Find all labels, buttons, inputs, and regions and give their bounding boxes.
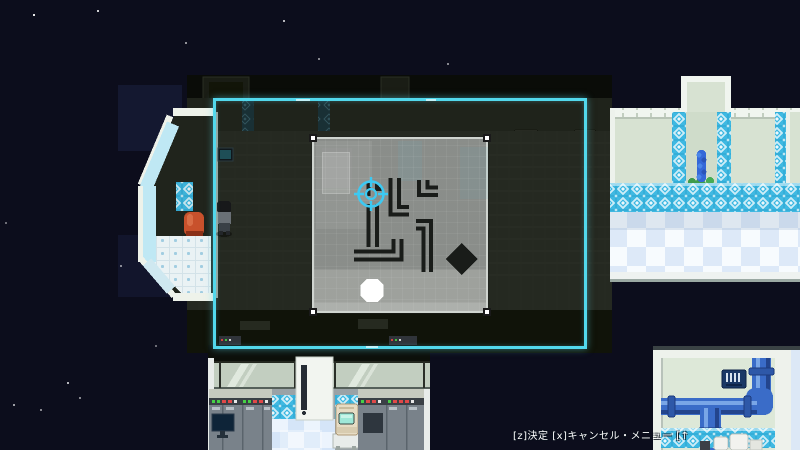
star bbox=[79, 397, 81, 399]
star bbox=[185, 42, 187, 44]
server-cabinets bbox=[358, 389, 430, 450]
pipe-piece-elbow-up-right-large[interactable] bbox=[391, 178, 410, 215]
status-bar: [z]決定 [x]キャンセル・メニュー [↑ bbox=[513, 431, 689, 443]
star bbox=[13, 404, 15, 406]
star bbox=[40, 409, 42, 411]
goal-circle[interactable] bbox=[361, 279, 384, 302]
computer-screen bbox=[339, 413, 354, 424]
star bbox=[318, 58, 320, 60]
pipe-vent bbox=[722, 370, 746, 388]
star bbox=[67, 382, 69, 384]
server-cabinets bbox=[209, 389, 272, 450]
star bbox=[5, 222, 7, 224]
star bbox=[283, 20, 285, 22]
wainscot-tiles bbox=[610, 183, 800, 212]
target-cursor-icon[interactable] bbox=[354, 177, 388, 211]
game-screen: [z]決定 [x]キャンセル・メニュー [↑ bbox=[0, 0, 800, 450]
resize-handle-top-left[interactable] bbox=[309, 134, 317, 142]
resize-handle-bottom-right[interactable] bbox=[483, 308, 491, 316]
star bbox=[447, 63, 449, 65]
frame-sparkle bbox=[366, 346, 378, 348]
pipe-piece-elbow-up-right-small[interactable] bbox=[419, 180, 438, 195]
window-glass bbox=[143, 186, 156, 262]
star bbox=[97, 10, 99, 12]
pipe-piece-elbow-left-down[interactable] bbox=[416, 221, 431, 272]
star bbox=[120, 265, 122, 267]
window-frame bbox=[173, 108, 214, 116]
wall-edge bbox=[424, 389, 430, 450]
lab-room bbox=[208, 345, 430, 450]
orange-chair bbox=[184, 212, 204, 236]
resize-handle-top-right[interactable] bbox=[483, 134, 491, 142]
pipe-piece-vertical-straight[interactable] bbox=[369, 204, 378, 247]
star bbox=[33, 14, 35, 16]
resize-handle-bottom-left[interactable] bbox=[309, 308, 317, 316]
door-panel bbox=[296, 357, 333, 420]
teal-wainscot-patch bbox=[176, 182, 193, 211]
frame-sparkle bbox=[296, 99, 310, 101]
floor-edge bbox=[610, 272, 800, 280]
room-frame bbox=[775, 350, 791, 450]
door-slider bbox=[301, 365, 307, 410]
frame-sparkle bbox=[426, 99, 436, 101]
teal-wall-panel bbox=[272, 395, 296, 419]
window-frame bbox=[173, 293, 214, 301]
star bbox=[155, 345, 157, 347]
diamond-block[interactable] bbox=[446, 243, 478, 275]
window-frame bbox=[138, 186, 143, 262]
control-hints-text: [z]決定 [x]キャンセル・メニュー [↑ bbox=[513, 431, 689, 442]
puzzle-pieces bbox=[314, 139, 490, 315]
puzzle-panel[interactable] bbox=[312, 137, 488, 313]
